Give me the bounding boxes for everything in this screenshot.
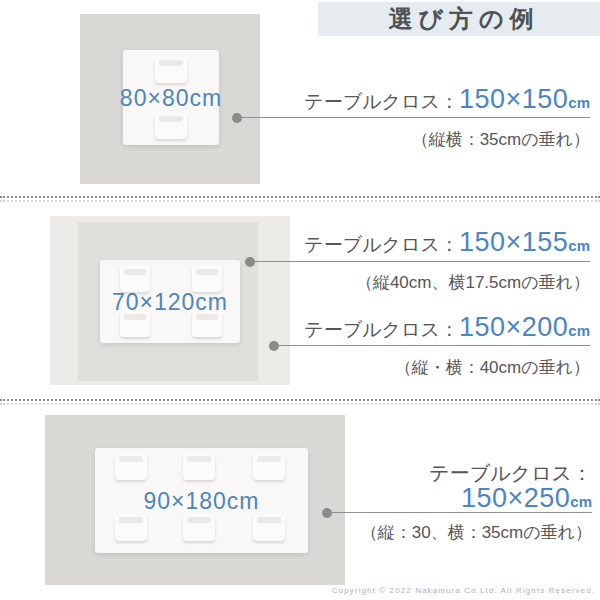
- chair: [183, 514, 215, 541]
- leader-dot: [245, 257, 255, 267]
- tablecloth-size-guide: 選び方の例 80×80cm テーブルクロス：150×150cm （縦横：35cm…: [0, 0, 600, 600]
- cloth-spec: テーブルクロス：150×250cm （縦：30、横：35cmの垂れ）: [361, 461, 592, 544]
- cloth-spec-size: 150×150: [459, 84, 568, 114]
- cloth-spec-main: テーブルクロス：150×150cm: [304, 84, 590, 118]
- leader-dot: [322, 508, 332, 518]
- cloth-spec-unit: cm: [568, 94, 590, 111]
- chair: [155, 113, 187, 139]
- leader-dot: [269, 341, 279, 351]
- cloth-spec-note: （縦：30、横：35cmの垂れ）: [361, 521, 592, 544]
- table-size-label: 80×80cm: [120, 84, 222, 111]
- dotted-divider: [0, 196, 600, 198]
- page-title: 選び方の例: [318, 2, 600, 36]
- dotted-divider-shadow: [0, 403, 600, 405]
- page-title-text: 選び方の例: [378, 3, 539, 35]
- cloth-spec-size: 150×250: [461, 483, 570, 513]
- cloth-spec-note: （縦横：35cmの垂れ）: [304, 128, 590, 151]
- cloth-spec: テーブルクロス：150×200cm （縦・横：40cmの垂れ）: [304, 312, 590, 379]
- cloth-spec-label: テーブルクロス：: [304, 319, 459, 340]
- chair: [115, 453, 147, 480]
- cloth-spec-unit: cm: [568, 237, 590, 254]
- cloth-spec-note: （縦40cm、横17.5cmの垂れ）: [304, 271, 590, 294]
- cloth-spec: テーブルクロス：150×155cm （縦40cm、横17.5cmの垂れ）: [304, 227, 590, 294]
- table-size-label: 90×180cm: [143, 487, 259, 514]
- chair: [183, 453, 215, 480]
- chair: [253, 514, 285, 541]
- chair: [120, 266, 150, 292]
- cloth-spec-size: 150×155: [459, 227, 568, 257]
- chair: [115, 514, 147, 541]
- cloth-spec-note: （縦・横：40cmの垂れ）: [304, 356, 590, 379]
- dotted-divider-shadow: [0, 200, 600, 202]
- cloth-spec-main: テーブルクロス：150×250cm: [361, 461, 592, 515]
- cloth-spec-label: テーブルクロス：: [361, 461, 592, 485]
- chair: [192, 266, 222, 292]
- chair: [120, 311, 150, 337]
- cloth-spec-label: テーブルクロス：: [304, 91, 459, 112]
- chair: [192, 311, 222, 337]
- cloth-spec-unit: cm: [568, 322, 590, 339]
- leader-dot: [232, 113, 242, 123]
- cloth-spec-main: テーブルクロス：150×155cm: [304, 227, 590, 261]
- cloth-spec: テーブルクロス：150×150cm （縦横：35cmの垂れ）: [304, 84, 590, 151]
- cloth-spec-unit: cm: [570, 493, 592, 510]
- dotted-divider: [0, 399, 600, 401]
- copyright-text: Copyright © 2022 Nakamura Co.Ltd. All Ri…: [332, 586, 595, 595]
- cloth-spec-label: テーブルクロス：: [304, 234, 459, 255]
- chair: [155, 57, 187, 83]
- cloth-spec-main: テーブルクロス：150×200cm: [304, 312, 590, 346]
- cloth-spec-size: 150×200: [459, 312, 568, 342]
- chair: [253, 453, 285, 480]
